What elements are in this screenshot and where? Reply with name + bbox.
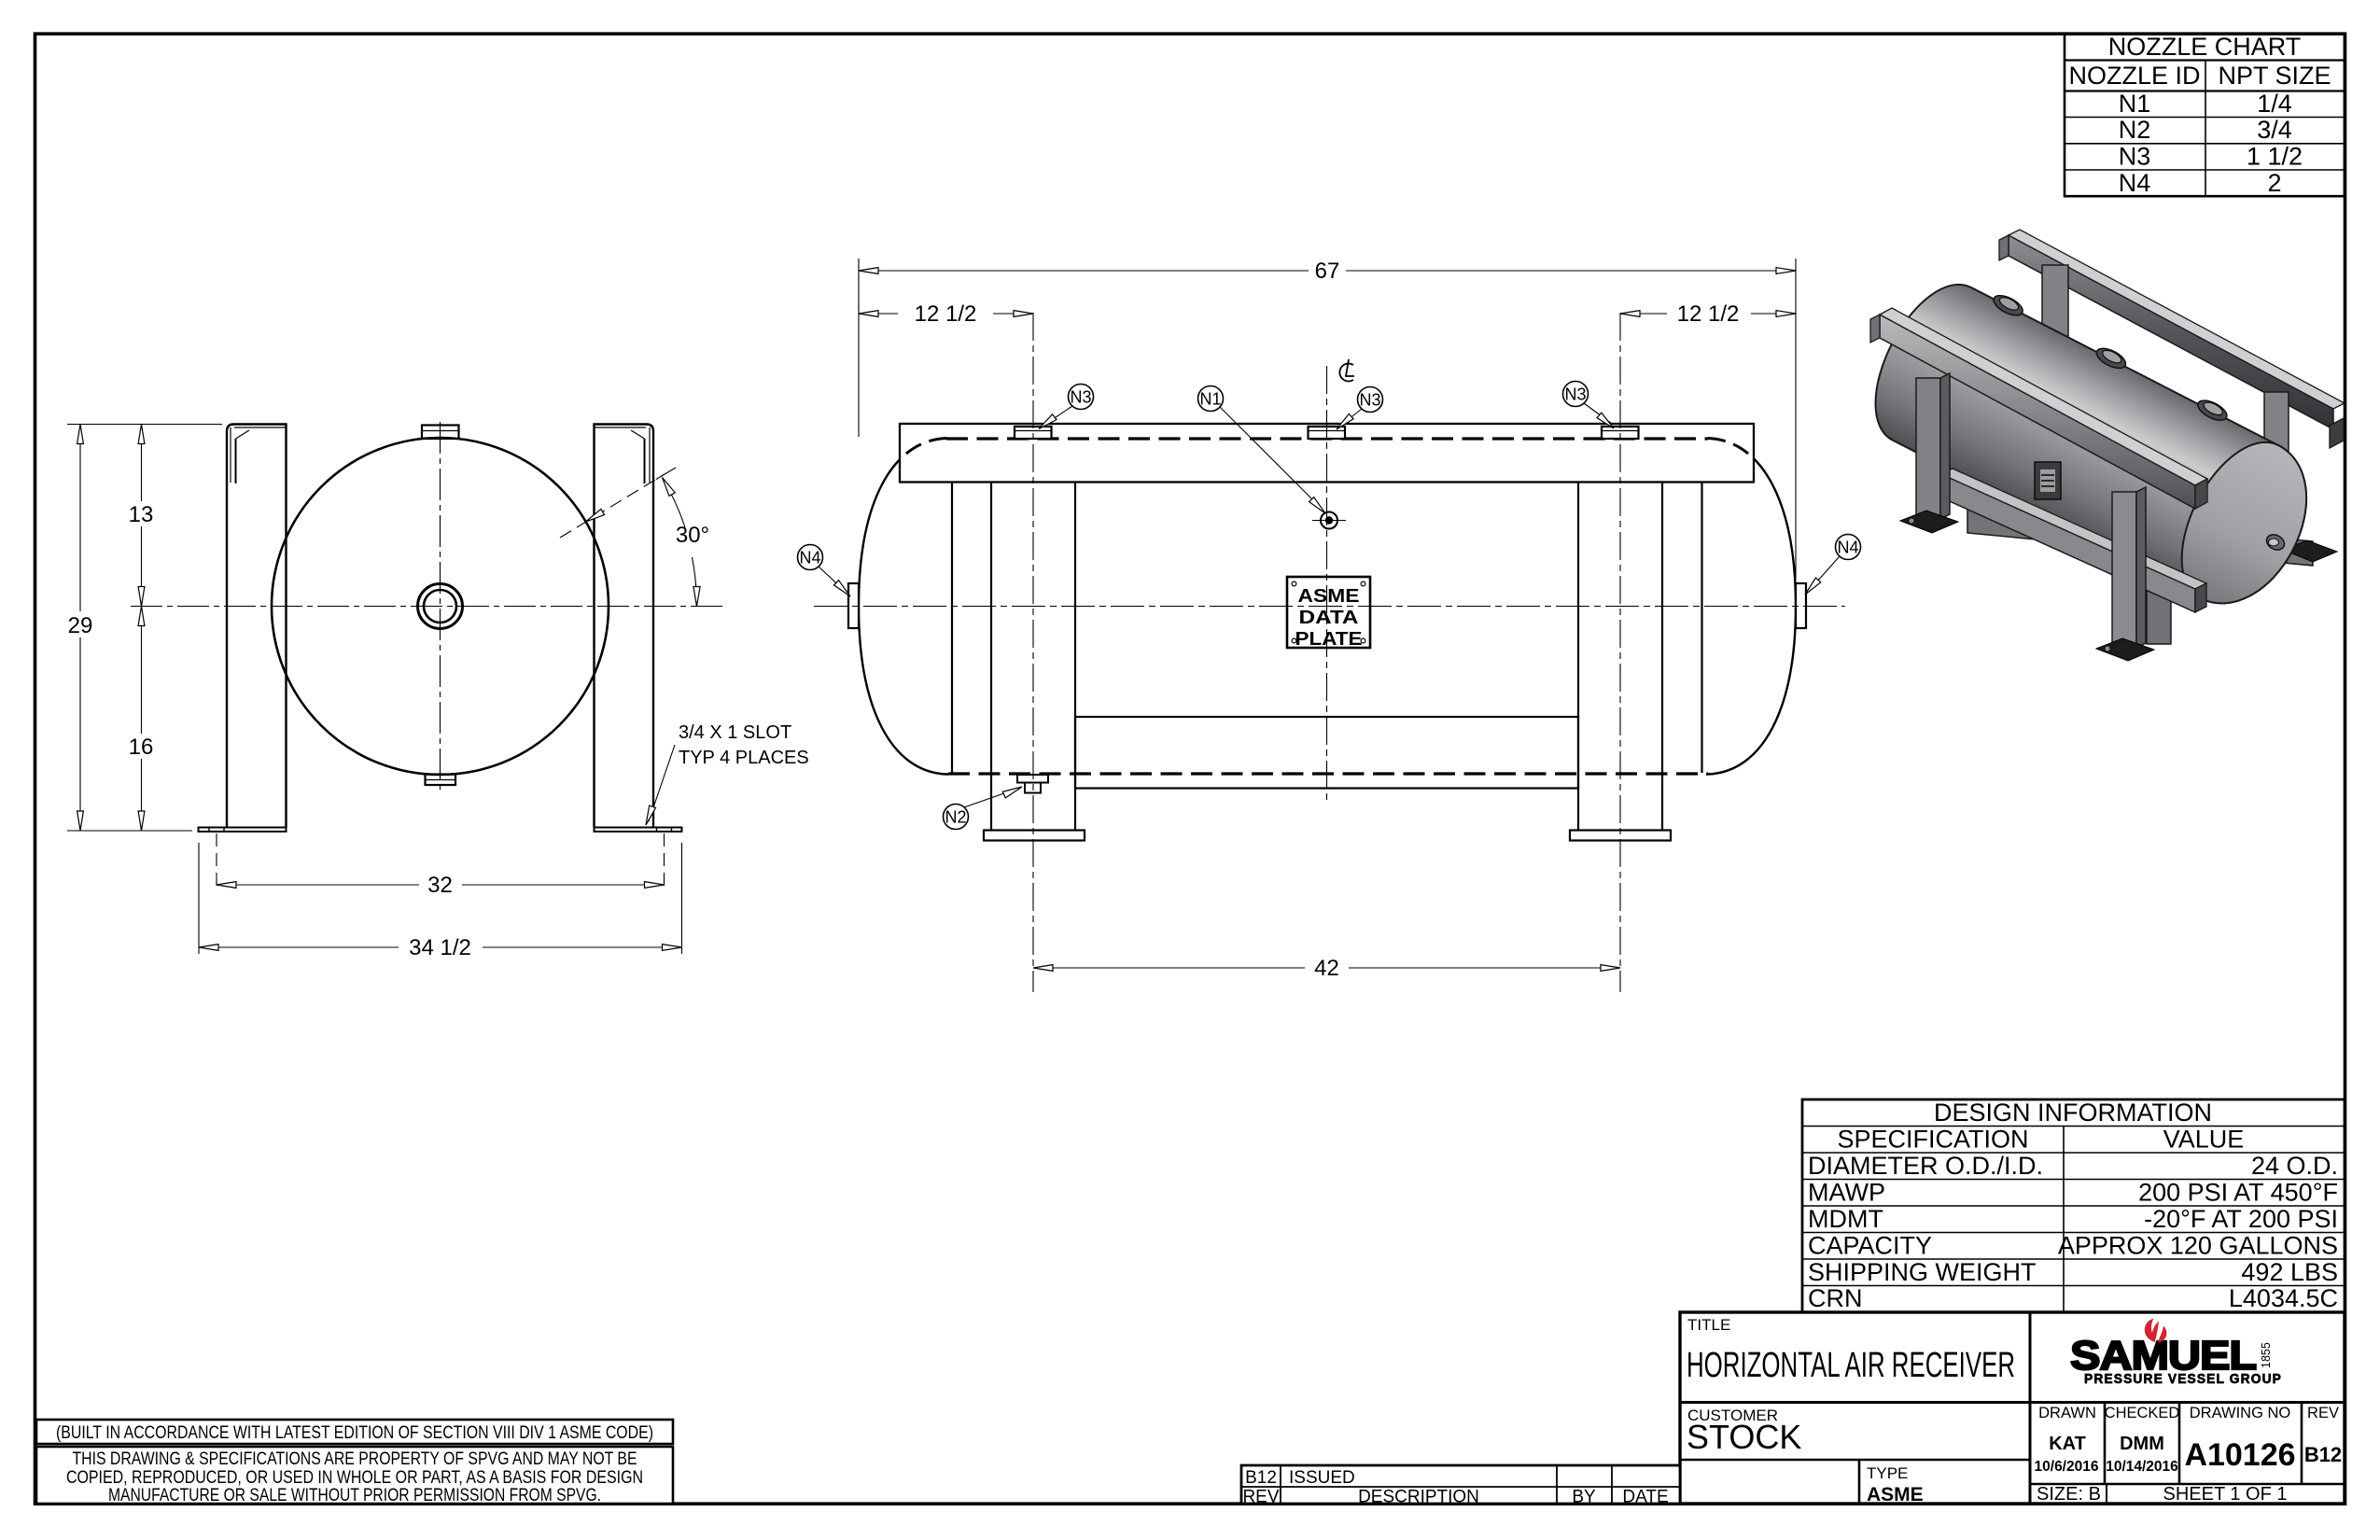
svg-text:(BUILT IN ACCORDANCE WITH LATE: (BUILT IN ACCORDANCE WITH LATEST EDITION… (56, 1423, 653, 1443)
svg-text:HORIZONTAL AIR RECEIVER: HORIZONTAL AIR RECEIVER (1687, 1346, 2015, 1385)
svg-text:42: 42 (1314, 956, 1339, 981)
svg-text:N1: N1 (2119, 90, 2151, 118)
svg-text:N4: N4 (1837, 539, 1858, 557)
svg-text:CAPACITY: CAPACITY (1808, 1232, 1932, 1260)
svg-text:MANUFACTURE OR SALE WITHOUT PR: MANUFACTURE OR SALE WITHOUT PRIOR PERMIS… (108, 1486, 601, 1505)
svg-text:ASME: ASME (1867, 1484, 1924, 1505)
svg-text:12 1/2: 12 1/2 (1677, 301, 1740, 327)
svg-text:ISSUED: ISSUED (1289, 1468, 1355, 1488)
svg-text:CHECKED: CHECKED (2105, 1405, 2180, 1421)
svg-text:APPROX 120 GALLONS: APPROX 120 GALLONS (2058, 1232, 2338, 1260)
svg-text:1/4: 1/4 (2257, 90, 2292, 118)
svg-text:SHIPPING WEIGHT: SHIPPING WEIGHT (1808, 1258, 2037, 1286)
svg-text:N3: N3 (1359, 391, 1380, 410)
svg-text:SHEET 1 OF 1: SHEET 1 OF 1 (2163, 1484, 2287, 1505)
svg-text:DESCRIPTION: DESCRIPTION (1358, 1488, 1479, 1507)
svg-text:PRESSURE VESSEL GROUP: PRESSURE VESSEL GROUP (2084, 1372, 2282, 1387)
svg-text:DRAWING NO: DRAWING NO (2190, 1405, 2291, 1421)
svg-text:N4: N4 (2119, 169, 2151, 197)
svg-text:16: 16 (129, 735, 154, 760)
svg-text:A10126: A10126 (2184, 1437, 2295, 1473)
svg-text:COPIED, REPRODUCED, OR USED IN: COPIED, REPRODUCED, OR USED IN WHOLE OR … (66, 1468, 643, 1488)
svg-text:NOZZLE ID: NOZZLE ID (2068, 62, 2200, 90)
svg-text:L4034.5C: L4034.5C (2229, 1284, 2338, 1312)
svg-text:BY: BY (1572, 1488, 1596, 1507)
svg-text:MDMT: MDMT (1808, 1205, 1883, 1233)
svg-text:THIS DRAWING & SPECIFICATIONS: THIS DRAWING & SPECIFICATIONS ARE PROPER… (73, 1449, 637, 1469)
svg-text:3/4 X 1 SLOT: 3/4 X 1 SLOT (679, 722, 791, 743)
svg-text:TYPE: TYPE (1867, 1464, 1908, 1482)
svg-text:492 LBS: 492 LBS (2241, 1258, 2338, 1286)
svg-text:67: 67 (1315, 259, 1340, 284)
svg-text:2: 2 (2267, 169, 2281, 197)
svg-text:29: 29 (68, 613, 93, 638)
svg-text:STOCK: STOCK (1687, 1418, 1801, 1456)
svg-text:1 1/2: 1 1/2 (2247, 143, 2303, 171)
svg-text:3/4: 3/4 (2257, 116, 2292, 144)
svg-text:10/14/2016: 10/14/2016 (2106, 1459, 2178, 1475)
svg-text:ASME: ASME (1298, 586, 1360, 607)
svg-text:CRN: CRN (1808, 1284, 1863, 1312)
svg-text:REV: REV (2307, 1405, 2339, 1421)
svg-text:SPECIFICATION: SPECIFICATION (1837, 1126, 2028, 1154)
svg-text:200 PSI AT 450°F: 200 PSI AT 450°F (2138, 1179, 2338, 1207)
svg-text:30°: 30° (676, 523, 709, 548)
svg-text:12 1/2: 12 1/2 (915, 301, 977, 327)
svg-text:NPT SIZE: NPT SIZE (2218, 62, 2331, 90)
svg-text:32: 32 (427, 873, 453, 898)
svg-text:B12: B12 (1245, 1468, 1277, 1488)
svg-text:DMM: DMM (2120, 1434, 2164, 1454)
svg-text:N2: N2 (2119, 116, 2151, 144)
svg-text:KAT: KAT (2049, 1434, 2086, 1454)
svg-text:10/6/2016: 10/6/2016 (2035, 1459, 2099, 1475)
svg-text:1855: 1855 (2260, 1342, 2273, 1368)
svg-text:N3: N3 (1070, 388, 1091, 407)
svg-text:24 O.D.: 24 O.D. (2251, 1152, 2338, 1180)
svg-text:PLATE: PLATE (1295, 629, 1363, 650)
svg-text:N4: N4 (799, 549, 820, 567)
svg-text:TITLE: TITLE (1687, 1316, 1730, 1334)
svg-text:DIAMETER O.D./I.D.: DIAMETER O.D./I.D. (1808, 1152, 2043, 1180)
svg-text:DESIGN INFORMATION: DESIGN INFORMATION (1934, 1099, 2212, 1127)
svg-text:N1: N1 (1199, 390, 1221, 409)
svg-text:VALUE: VALUE (2163, 1126, 2245, 1154)
svg-text:DATE: DATE (1622, 1488, 1668, 1507)
svg-text:13: 13 (129, 502, 154, 527)
svg-text:MAWP: MAWP (1808, 1179, 1885, 1207)
svg-text:34 1/2: 34 1/2 (409, 935, 471, 960)
svg-text:REV: REV (1242, 1488, 1279, 1507)
svg-text:DATA: DATA (1299, 608, 1359, 628)
svg-text:N2: N2 (945, 808, 966, 827)
svg-text:SIZE: B: SIZE: B (2037, 1484, 2101, 1505)
svg-text:B12: B12 (2304, 1443, 2342, 1466)
svg-text:N3: N3 (2119, 143, 2151, 171)
svg-text:N3: N3 (1564, 385, 1586, 404)
svg-text:NOZZLE CHART: NOZZLE CHART (2108, 33, 2302, 61)
svg-text:TYP 4 PLACES: TYP 4 PLACES (679, 748, 809, 768)
svg-text:-20°F AT 200 PSI: -20°F AT 200 PSI (2144, 1205, 2338, 1233)
svg-text:DRAWN: DRAWN (2038, 1405, 2096, 1421)
